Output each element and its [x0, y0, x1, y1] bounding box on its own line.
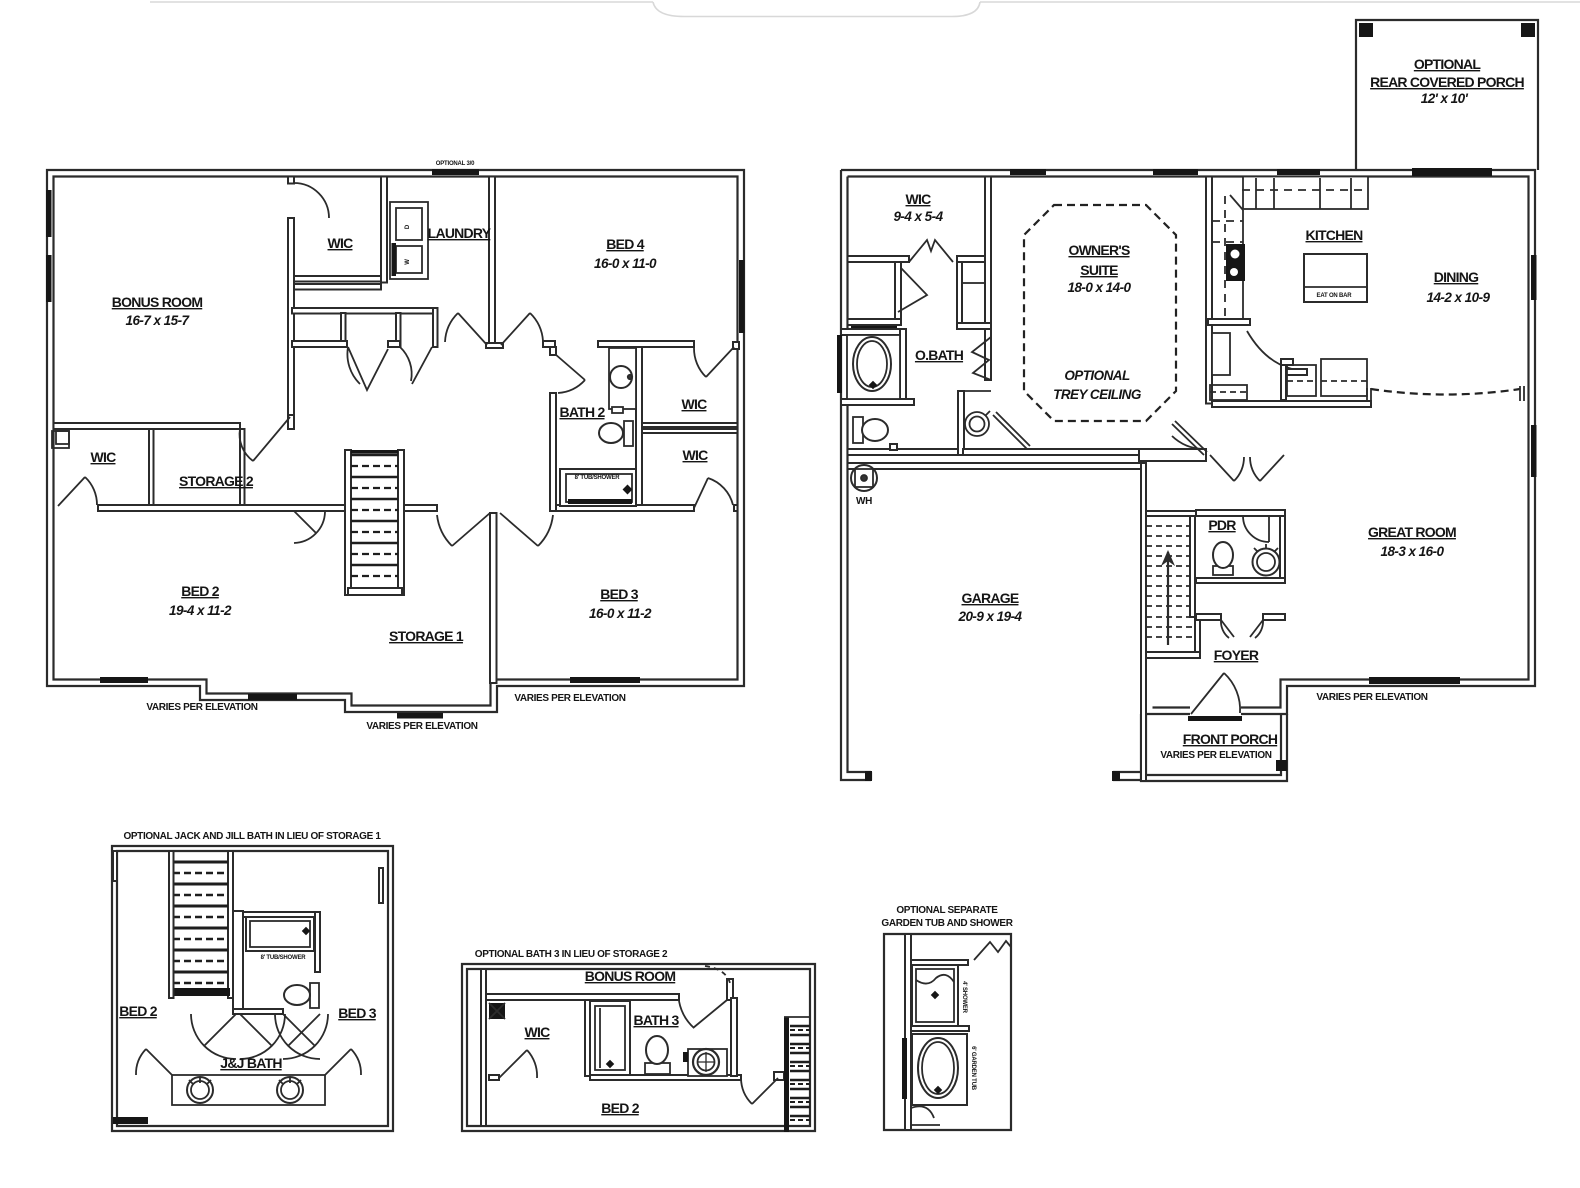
svg-text:WIC: WIC — [525, 1024, 551, 1040]
svg-text:SUITE: SUITE — [1080, 262, 1118, 278]
svg-text:GARAGE: GARAGE — [962, 590, 1019, 606]
svg-text:8' TUB/SHOWER: 8' TUB/SHOWER — [575, 475, 621, 481]
svg-text:6' GARDEN TUB: 6' GARDEN TUB — [970, 1046, 976, 1091]
svg-text:O.BATH: O.BATH — [915, 347, 964, 363]
svg-text:14-2 x 10-9: 14-2 x 10-9 — [1427, 290, 1491, 305]
svg-text:18-0 x 14-0: 18-0 x 14-0 — [1068, 280, 1132, 295]
svg-text:BED 2: BED 2 — [601, 1100, 639, 1116]
svg-text:OPTIONAL: OPTIONAL — [1414, 56, 1482, 72]
svg-text:STORAGE 2: STORAGE 2 — [179, 473, 254, 489]
svg-text:EAT ON BAR: EAT ON BAR — [1317, 293, 1353, 299]
svg-text:9-4 x 5-4: 9-4 x 5-4 — [893, 209, 943, 224]
svg-text:BED 2: BED 2 — [119, 1003, 157, 1019]
svg-text:BATH 3: BATH 3 — [633, 1012, 679, 1028]
svg-text:16-0 x 11-0: 16-0 x 11-0 — [594, 256, 657, 271]
svg-text:BATH 2: BATH 2 — [559, 404, 605, 420]
svg-text:16-0 x 11-2: 16-0 x 11-2 — [589, 606, 652, 621]
svg-text:OPTIONAL: OPTIONAL — [1064, 368, 1130, 383]
svg-text:VARIES PER ELEVATION: VARIES PER ELEVATION — [1160, 750, 1271, 761]
svg-text:GREAT ROOM: GREAT ROOM — [1368, 524, 1456, 540]
svg-text:REAR COVERED PORCH: REAR COVERED PORCH — [1370, 74, 1524, 90]
svg-text:VARIES PER ELEVATION: VARIES PER ELEVATION — [146, 702, 257, 713]
svg-text:18-3 x 16-0: 18-3 x 16-0 — [1381, 544, 1445, 559]
svg-text:PDR: PDR — [1208, 517, 1236, 533]
svg-text:KITCHEN: KITCHEN — [1306, 227, 1364, 243]
svg-text:12' x 10': 12' x 10' — [1421, 91, 1469, 106]
svg-text:VARIES PER ELEVATION: VARIES PER ELEVATION — [514, 693, 625, 704]
svg-text:FOYER: FOYER — [1214, 647, 1259, 663]
svg-text:BED 3: BED 3 — [338, 1005, 376, 1021]
svg-text:4' SHOWER: 4' SHOWER — [961, 981, 967, 1013]
svg-text:WIC: WIC — [906, 191, 932, 207]
svg-text:BONUS ROOM: BONUS ROOM — [585, 968, 676, 984]
svg-text:BED 3: BED 3 — [600, 586, 638, 602]
svg-text:TREY CEILING: TREY CEILING — [1053, 387, 1142, 402]
svg-text:WIC: WIC — [91, 449, 117, 465]
svg-text:OPTIONAL 3/0: OPTIONAL 3/0 — [436, 161, 475, 167]
svg-text:BED 2: BED 2 — [181, 583, 219, 599]
svg-text:GARDEN TUB AND SHOWER: GARDEN TUB AND SHOWER — [881, 918, 1013, 929]
svg-text:VARIES PER ELEVATION: VARIES PER ELEVATION — [366, 721, 477, 732]
svg-text:FRONT PORCH: FRONT PORCH — [1183, 731, 1278, 747]
svg-text:8' TUB/SHOWER: 8' TUB/SHOWER — [261, 955, 307, 961]
svg-text:DINING: DINING — [1434, 269, 1479, 285]
svg-text:J&J BATH: J&J BATH — [220, 1055, 282, 1071]
svg-text:OPTIONAL JACK AND JILL BATH IN: OPTIONAL JACK AND JILL BATH IN LIEU OF S… — [123, 831, 381, 842]
svg-text:VARIES PER ELEVATION: VARIES PER ELEVATION — [1316, 692, 1427, 703]
svg-text:WIC: WIC — [328, 235, 354, 251]
svg-text:W: W — [405, 259, 411, 265]
svg-text:OWNER'S: OWNER'S — [1068, 242, 1129, 258]
svg-text:LAUNDRY: LAUNDRY — [428, 225, 492, 241]
svg-text:19-4 x 11-2: 19-4 x 11-2 — [169, 603, 232, 618]
svg-text:BED 4: BED 4 — [606, 236, 644, 252]
svg-text:OPTIONAL SEPARATE: OPTIONAL SEPARATE — [896, 905, 998, 916]
svg-text:16-7 x 15-7: 16-7 x 15-7 — [126, 313, 191, 328]
svg-text:STORAGE 1: STORAGE 1 — [389, 628, 464, 644]
svg-text:WIC: WIC — [683, 447, 709, 463]
svg-text:BONUS ROOM: BONUS ROOM — [112, 294, 203, 310]
svg-text:WIC: WIC — [682, 396, 708, 412]
svg-text:WH: WH — [856, 496, 872, 507]
svg-text:20-9 x 19-4: 20-9 x 19-4 — [958, 609, 1023, 624]
svg-text:OPTIONAL BATH 3 IN LIEU OF STO: OPTIONAL BATH 3 IN LIEU OF STORAGE 2 — [475, 949, 668, 960]
